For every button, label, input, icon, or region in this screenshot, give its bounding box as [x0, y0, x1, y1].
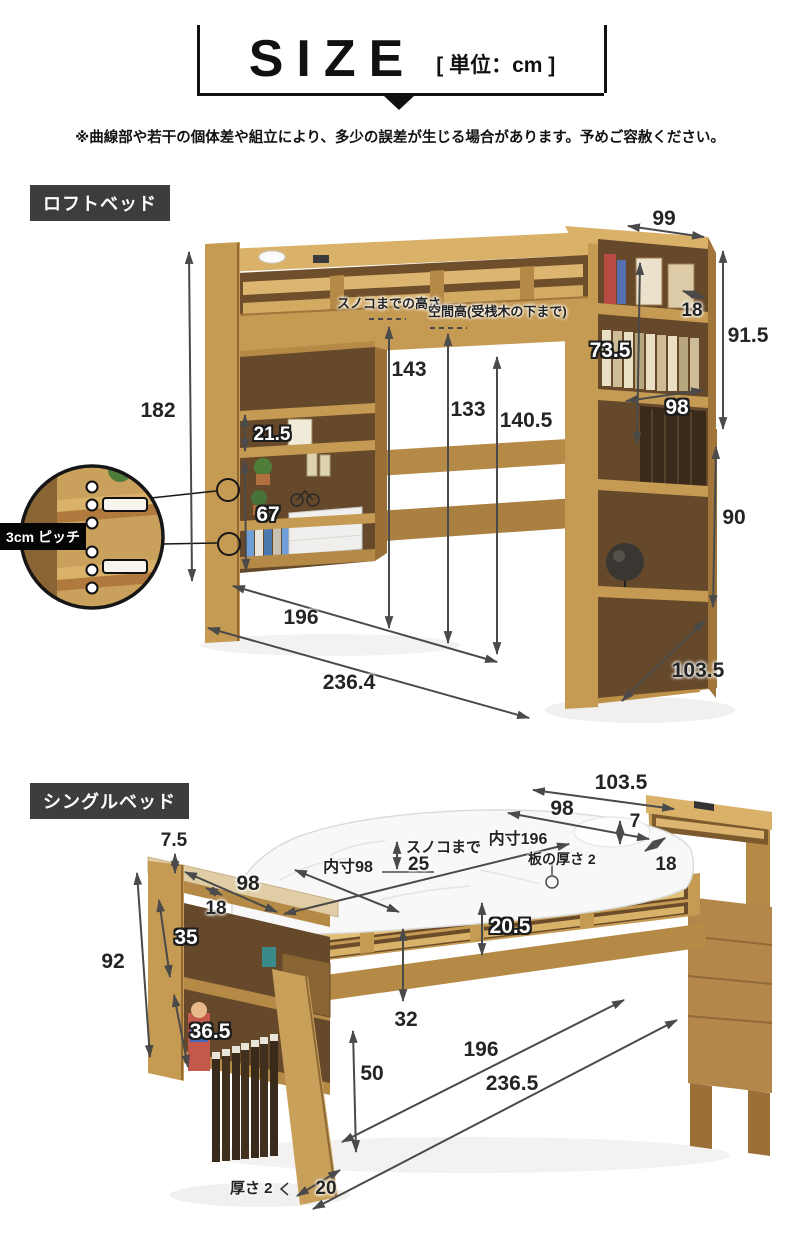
- single-dim-head-depth: 18: [655, 855, 676, 874]
- single-dim-total-height: 92: [101, 951, 124, 972]
- plant: [254, 458, 272, 476]
- loft-under-shelf: [240, 341, 387, 573]
- loft-dim-lower-height: 90: [722, 507, 745, 528]
- cup: [259, 251, 285, 263]
- loft-dim-shelf-inner-width: 98: [665, 397, 688, 418]
- size-header: SIZE [ 単位：cm ]: [197, 25, 607, 93]
- loft-dim-under-height: 140.5: [500, 410, 553, 431]
- white-basket: [289, 507, 362, 555]
- single-bed-illustration: [148, 795, 772, 1207]
- loft-dim-shelf-gap: 21.5: [254, 425, 291, 444]
- unit-note: [ 単位：cm ]: [436, 49, 555, 79]
- single-dim-depth: 103.5: [595, 772, 648, 793]
- single-board-thickness-label: 板の厚さ 2: [528, 852, 596, 866]
- loft-dim-shelf-depth: 18: [681, 301, 702, 320]
- loft-dim-space-height: 133: [450, 399, 485, 420]
- single-dim-leg-depth: 20: [315, 1179, 336, 1198]
- single-sunoko-label: スノコまで: [406, 840, 481, 855]
- single-dim-foot-depth: 18: [205, 899, 226, 918]
- size-spec-page: SIZE [ 単位：cm ] ※曲線部や若干の個体差や組立により、多少の誤差が生…: [0, 0, 800, 1235]
- single-bed-section-label: シングルベッド: [30, 783, 189, 819]
- loft-dim-upper-height: 91.5: [728, 325, 769, 346]
- single-dim-total-length: 236.5: [486, 1073, 539, 1094]
- single-thickness-label: 厚さ 2: [230, 1181, 273, 1196]
- single-dim-inner-length: 196: [463, 1039, 498, 1060]
- loft-dim-depth: 103.5: [672, 660, 725, 681]
- globe: [606, 543, 644, 581]
- loft-dim-shelf-column-height: 67: [256, 504, 279, 525]
- single-inner-width-label: 内寸98: [323, 860, 373, 876]
- loft-dim-top-width: 99: [652, 208, 675, 229]
- loft-space-height-label: 空間高(受桟木の下まで): [428, 305, 567, 318]
- header-arrow-down: [384, 96, 414, 110]
- single-dim-frame-floor-height: 50: [360, 1063, 383, 1084]
- loft-left-post: [205, 242, 240, 643]
- loft-dim-inner-width: 196: [283, 607, 318, 628]
- single-dim-under-clearance: 32: [394, 1009, 417, 1030]
- loft-dim-total-width: 236.4: [323, 672, 376, 693]
- pitch-label: 3cm ピッチ: [0, 523, 86, 550]
- single-sunoko-value: 25: [408, 855, 429, 874]
- single-dim-shelf-upper: 35: [174, 927, 197, 948]
- single-dim-foot-width: 98: [236, 873, 259, 894]
- jar: [320, 455, 330, 476]
- tolerance-note: ※曲線部や若干の個体差や組立により、多少の誤差が生じる場合があります。予めご容赦…: [0, 126, 800, 147]
- single-dim-shelf-lower: 36.5: [190, 1021, 231, 1042]
- figurine: [604, 254, 616, 304]
- single-dim-foot-cap-height: 7.5: [161, 831, 187, 850]
- loft-bed-section-label: ロフトベッド: [30, 185, 170, 221]
- single-dim-head-width: 98: [550, 798, 573, 819]
- loft-dim-total-height: 182: [140, 400, 175, 421]
- loft-upper-bunk: [205, 232, 588, 358]
- loft-sunoko-height-label: スノコまでの高さ: [337, 297, 441, 310]
- single-inner-length-label: 内寸196: [489, 832, 548, 848]
- page-title: SIZE: [249, 33, 417, 85]
- single-dim-head-gap: 7: [630, 812, 641, 831]
- loft-dim-shelf-inner-height: 73.5: [590, 340, 631, 361]
- jar: [307, 452, 317, 476]
- single-dim-rail-height: 20.5: [490, 916, 531, 937]
- loft-dim-sunoko-height: 143: [391, 359, 426, 380]
